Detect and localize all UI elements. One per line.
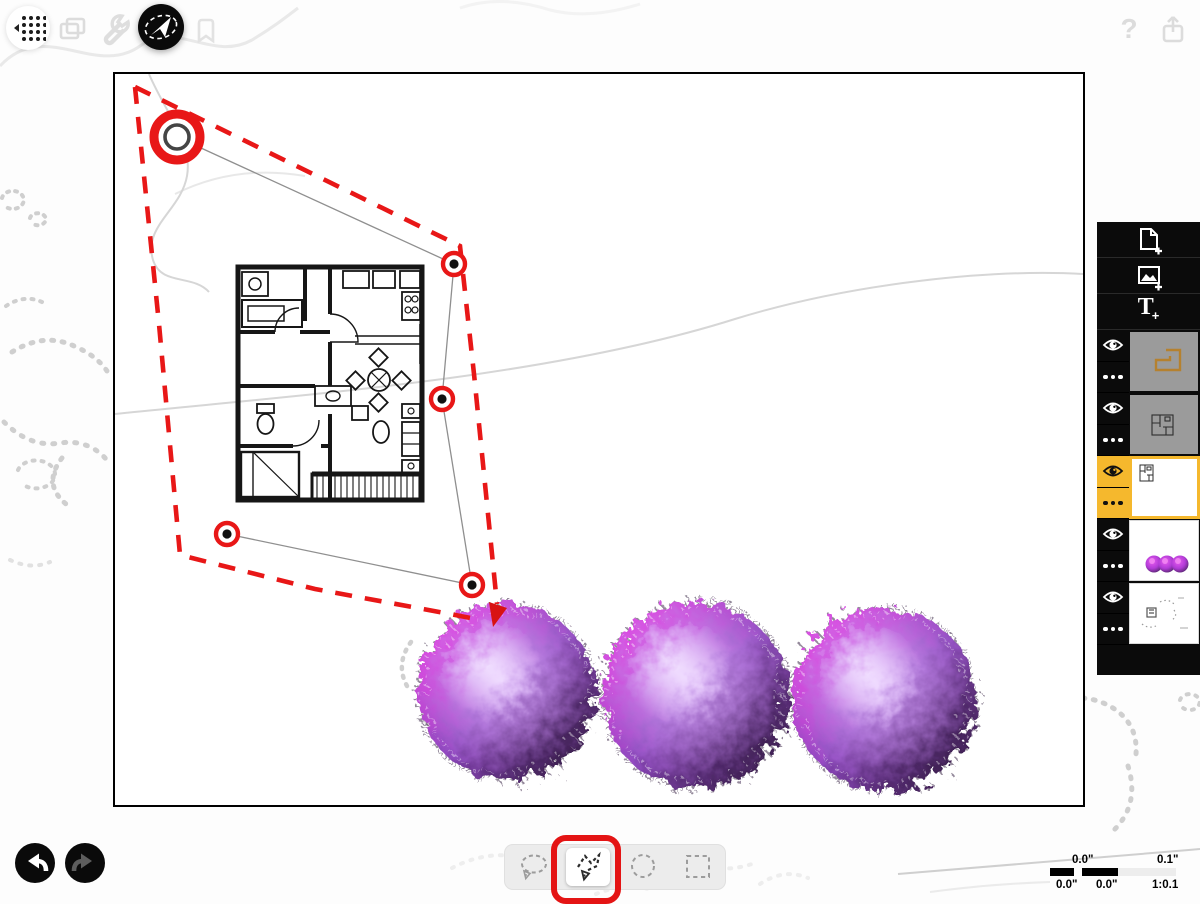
vertex-handle[interactable] — [216, 523, 238, 545]
layers-panel: T+ — [1097, 222, 1200, 675]
redo-button[interactable] — [65, 843, 105, 883]
ellipse-select-icon — [625, 850, 661, 884]
scale-label-top-right: 0.1" — [1157, 854, 1178, 866]
layer-visibility-toggle[interactable] — [1097, 519, 1129, 551]
bookmark-icon — [188, 10, 224, 46]
floor-plan-drawing — [238, 267, 422, 500]
tree-3 — [791, 606, 977, 792]
eye-icon — [1102, 590, 1124, 604]
eye-icon — [1102, 464, 1124, 478]
scale-label-top-left: 0.0" — [1072, 854, 1093, 866]
eye-icon — [1102, 401, 1124, 415]
tool-highlight-annotation — [551, 835, 621, 904]
vertex-handle[interactable] — [461, 574, 483, 596]
help-button[interactable]: ? — [1108, 8, 1150, 50]
vertex-handle-start[interactable] — [154, 114, 200, 160]
drawing-page[interactable] — [113, 72, 1085, 807]
selection-path-lines — [177, 137, 472, 585]
rect-select-icon — [680, 850, 716, 884]
layer-row-floorplan-selected[interactable] — [1097, 456, 1200, 519]
layer-thumbnail[interactable] — [1130, 521, 1198, 580]
vertex-handle[interactable] — [431, 388, 453, 410]
add-page-button[interactable] — [1097, 222, 1200, 258]
settings-button[interactable] — [94, 6, 138, 50]
eye-icon — [1102, 338, 1124, 352]
lasso-arrow-icon — [138, 4, 184, 50]
layer-row-trees[interactable] — [1097, 519, 1200, 582]
select-tool-button[interactable] — [138, 4, 184, 50]
grid-menu-button[interactable] — [6, 6, 50, 50]
scale-bar: 0.0" 0.1" 0.0" 0.0" 1:0.1 — [1044, 854, 1184, 892]
layer-thumbnail[interactable] — [1132, 459, 1197, 516]
selection-marquee — [135, 87, 497, 620]
page-artwork — [115, 74, 1083, 805]
stacked-pages-icon — [54, 10, 90, 46]
add-text-button[interactable]: T+ — [1097, 294, 1200, 330]
scale-segment — [1118, 868, 1176, 876]
add-image-button[interactable] — [1097, 258, 1200, 294]
pages-button[interactable] — [50, 6, 94, 50]
pencil-guideline — [115, 74, 1083, 414]
scale-label-bottom-left: 0.0" — [1056, 879, 1077, 891]
layer-options-button[interactable] — [1097, 425, 1129, 457]
wrench-icon — [98, 10, 134, 46]
layer-visibility-toggle[interactable] — [1097, 393, 1129, 425]
layer-row-orange-outline[interactable] — [1097, 330, 1200, 393]
layer-row-landscape-sketch[interactable] — [1097, 582, 1200, 645]
layer-options-button[interactable] — [1097, 488, 1129, 520]
tree-1 — [417, 602, 597, 782]
freehand-lasso-icon — [515, 850, 551, 884]
scale-label-bottom-mid: 0.0" — [1096, 879, 1117, 891]
vertex-handle[interactable] — [443, 253, 465, 275]
layer-thumbnail[interactable] — [1130, 584, 1198, 643]
layer-options-button[interactable] — [1097, 614, 1129, 646]
ellipse-select-tool[interactable] — [621, 848, 665, 886]
layer-visibility-toggle[interactable] — [1097, 582, 1129, 614]
eye-icon — [1102, 527, 1124, 541]
scale-ratio: 1:0.1 — [1152, 879, 1178, 891]
scale-segment — [1050, 868, 1074, 876]
share-button[interactable] — [1152, 8, 1194, 50]
scale-segment — [1082, 868, 1118, 876]
layer-options-button[interactable] — [1097, 362, 1129, 394]
rect-select-tool[interactable] — [676, 848, 720, 886]
share-icon — [1156, 12, 1190, 46]
layer-visibility-toggle[interactable] — [1097, 330, 1129, 362]
redo-icon — [70, 848, 100, 878]
layer-thumbnail[interactable] — [1130, 332, 1198, 391]
undo-icon — [20, 848, 50, 878]
undo-button[interactable] — [15, 843, 55, 883]
image-plus-icon — [1134, 261, 1164, 291]
freehand-lasso-tool[interactable] — [511, 848, 555, 886]
layer-row-floorplan-dimmed[interactable] — [1097, 393, 1200, 456]
dot-grid-icon — [10, 10, 46, 46]
mask-button[interactable] — [184, 6, 228, 50]
layer-options-button[interactable] — [1097, 551, 1129, 583]
layer-thumbnail[interactable] — [1130, 395, 1198, 454]
layer-visibility-toggle[interactable] — [1097, 456, 1129, 488]
tree-2 — [600, 600, 790, 790]
document-plus-icon — [1134, 225, 1164, 255]
